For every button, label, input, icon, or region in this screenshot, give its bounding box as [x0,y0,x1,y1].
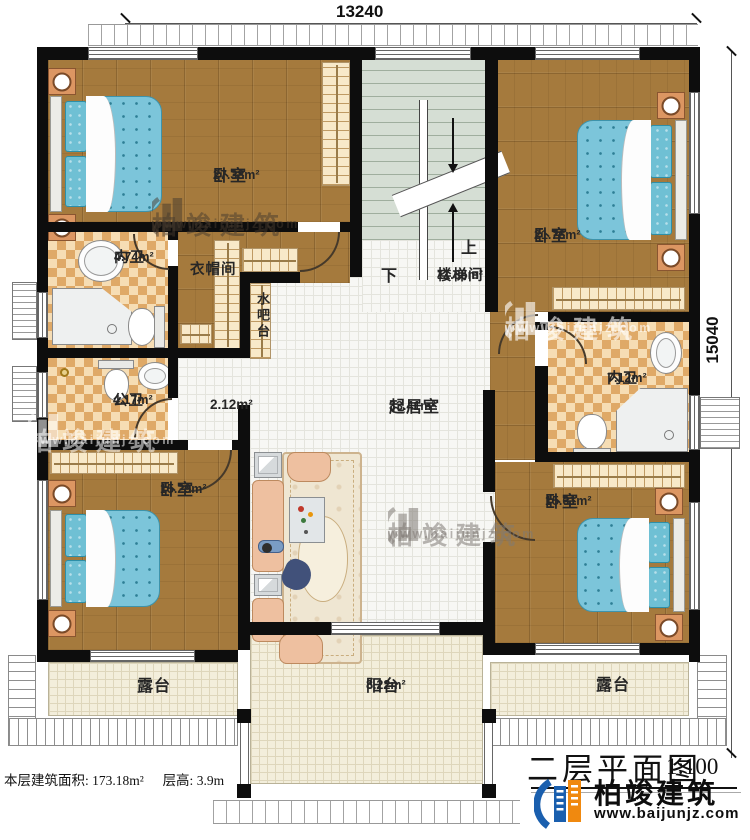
floor-stats: 本层建筑面积: 173.18m² 层高: 3.9m [4,769,224,789]
stair-direction-arrow [452,118,454,166]
dimension-tick [120,13,131,24]
window [689,502,700,610]
wardrobe [242,248,298,272]
toilet-tank [98,360,134,369]
window [37,292,48,338]
wall-segment [240,283,250,358]
window [689,92,700,214]
side-table [254,452,282,478]
sliding-door [331,622,440,635]
balcony-post [237,709,251,723]
nightstand [655,488,683,515]
wall-segment [340,222,350,232]
wardrobe [552,287,685,310]
terrace-railing [490,718,727,746]
bed [50,510,160,607]
window [37,372,48,418]
wall-segment [535,452,700,462]
sink [650,332,682,374]
balcony-post [237,784,251,798]
wall-segment [240,272,300,283]
wardrobe [322,62,350,186]
wall-segment [37,440,188,450]
dimension-right: 15040 [703,310,723,370]
shoe-rack [180,324,212,344]
ac-platform [12,282,37,340]
ac-platform [700,397,740,449]
side-table [254,574,282,596]
sofa [252,480,284,572]
nightstand [48,480,76,507]
nightstand [48,610,76,637]
window [535,643,640,655]
balcony-eave [213,800,520,824]
window [535,47,640,60]
terrace-right-floor [490,662,689,716]
wall-segment [535,366,548,462]
balcony-post [482,709,496,723]
brand-website: www.baijunjz.com [594,805,739,822]
brand-logo [534,770,590,832]
dimension-top: 13240 [336,2,383,22]
wall-segment [483,542,495,655]
nightstand [655,614,683,641]
window [90,650,195,662]
person-figure [262,543,272,553]
window [375,47,471,60]
wall-segment [548,312,689,322]
wardrobe [214,240,240,350]
window [689,395,700,450]
toilet-tank [154,306,165,348]
armchair [287,452,331,482]
floor-drain [60,368,69,377]
window [88,47,198,60]
ac-platform [12,366,37,422]
dimension-tick [691,13,702,24]
wardrobe [50,452,178,474]
wall-segment [483,390,495,460]
wall-segment [37,222,298,232]
wall-segment [350,47,362,277]
room-label-water-bar: 水吧台 [253,292,272,340]
bed [577,518,685,612]
wall-segment [168,358,178,398]
balcony-post [482,784,496,798]
balcony-railing [484,723,493,784]
toilet [128,308,156,346]
sofa [252,598,284,642]
toilet [577,414,607,450]
nightstand [657,244,685,271]
terrace-railing [8,718,238,746]
nightstand [657,92,685,119]
wall-segment [483,460,495,492]
armchair [279,633,323,664]
bed [50,96,162,212]
bed [577,120,687,240]
roof-eave [88,24,698,46]
arrow-head-icon [448,203,458,212]
nightstand [48,68,76,95]
coffee-table [289,497,325,543]
arrow-head-icon [448,164,458,173]
wall-segment [238,405,250,650]
wall-segment [168,266,178,348]
wall-segment [485,47,498,312]
stair-direction-arrow [452,212,454,262]
wall-segment [37,348,250,358]
balcony-railing [240,723,249,784]
window [37,480,48,600]
wardrobe [553,464,685,488]
sink [138,362,172,390]
wall-segment [168,232,178,240]
floor-plan: 13240 15040 [0,0,750,840]
